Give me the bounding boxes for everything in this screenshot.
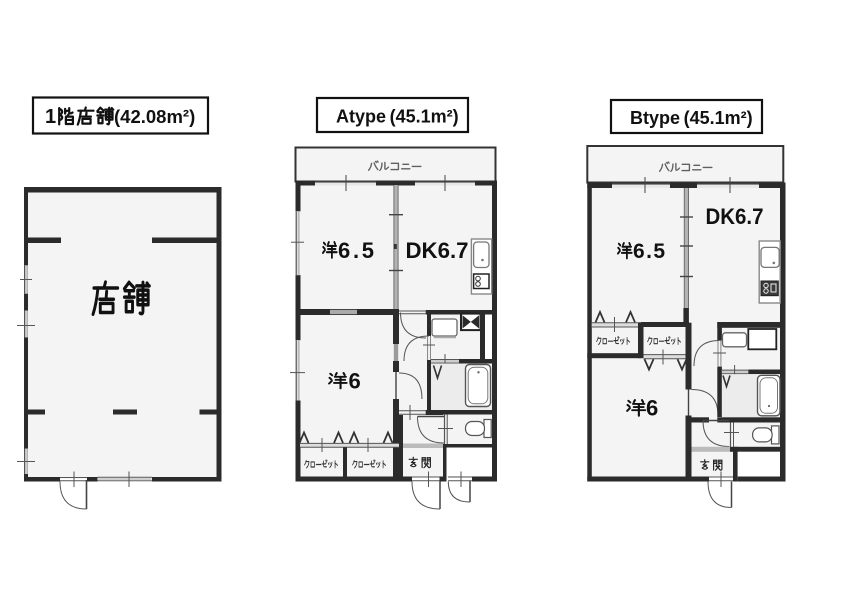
svg-text:DK6.7: DK6.7	[706, 204, 764, 229]
svg-text:Btype (45.1m²): Btype (45.1m²)	[630, 108, 753, 128]
svg-text:(42.08m²): (42.08m²)	[114, 106, 195, 127]
svg-text:1: 1	[45, 106, 56, 128]
svg-text:DK6.7: DK6.7	[406, 238, 469, 263]
svg-text:6: 6	[646, 396, 658, 421]
svg-text:6.5: 6.5	[338, 238, 374, 263]
svg-text:6: 6	[349, 369, 361, 394]
svg-text:6.5: 6.5	[633, 240, 665, 263]
svg-text:Atype (45.1m²): Atype (45.1m²)	[336, 107, 459, 127]
